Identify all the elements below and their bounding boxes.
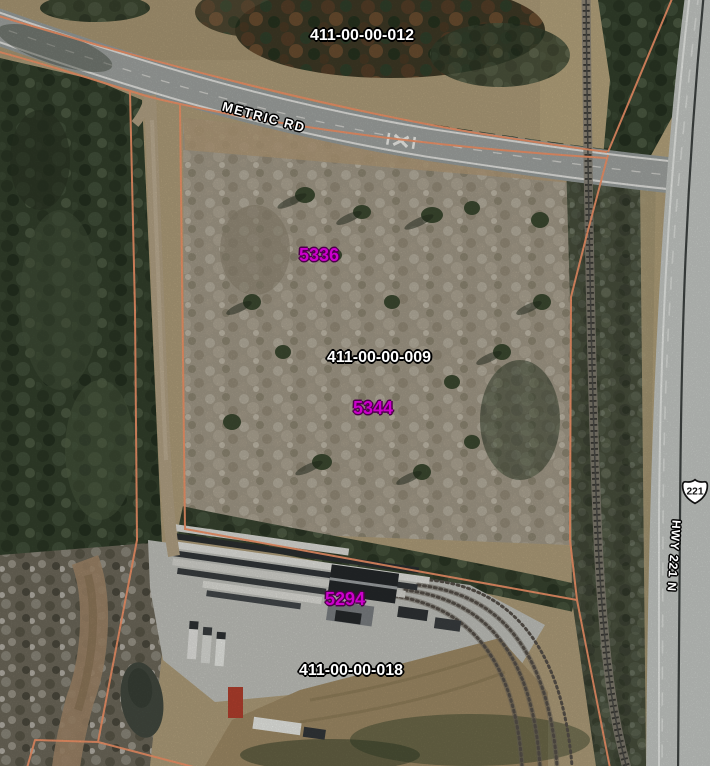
site-label-5344: 5344 [353,399,393,417]
site-label-5336: 5336 [299,246,339,264]
photo-grain-overlay [0,0,710,766]
parcel-label-009: 411-00-00-009 [327,350,431,366]
site-label-5294: 5294 [325,590,365,608]
parcel-label-018: 411-00-00-018 [299,663,403,679]
parcel-label-012: 411-00-00-012 [310,28,414,44]
map-canvas[interactable]: 411-00-00-012 METRIC RD 5336 411-00-00-0… [0,0,710,766]
route-shield-number: 221 [686,487,703,498]
aerial-imagery [0,0,710,766]
